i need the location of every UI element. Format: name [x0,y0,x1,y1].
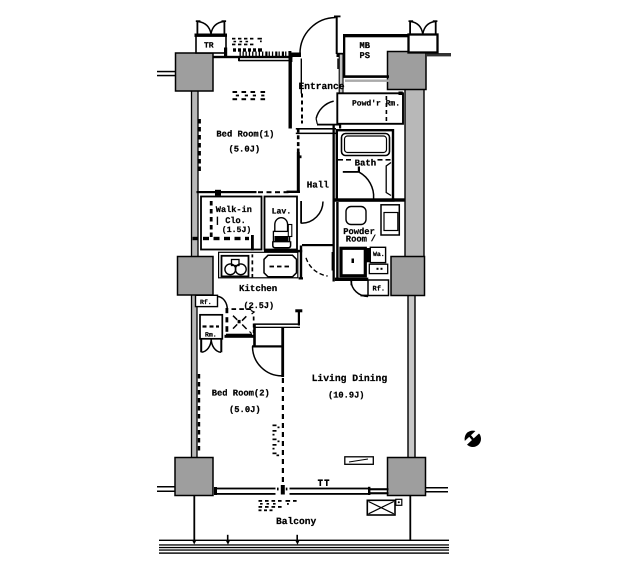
svg-text:Rm.: Rm. [205,332,217,339]
svg-text:Balcony: Balcony [276,516,317,527]
svg-text:(5.0J): (5.0J) [229,405,261,415]
svg-text:Bed Room(1): Bed Room(1) [216,129,274,139]
svg-text:| Clo.: | Clo. [215,216,246,226]
svg-text:TR: TR [204,42,214,51]
svg-text:(1.5J): (1.5J) [222,226,251,235]
svg-text:Room: Room [346,235,367,245]
svg-text:Powd'r Rm.: Powd'r Rm. [352,99,400,108]
svg-text:Wa.: Wa. [373,251,385,258]
svg-text:Hall: Hall [307,180,330,191]
svg-text:Rf.: Rf. [200,299,212,306]
svg-text:Lav.: Lav. [272,207,292,216]
svg-text:(10.9J): (10.9J) [328,391,365,401]
svg-text:Rf.: Rf. [373,285,386,294]
svg-text:Entrance: Entrance [299,81,345,92]
svg-text:Living Dining: Living Dining [312,373,388,384]
svg-text:PS: PS [360,51,371,61]
svg-text:/: / [371,234,376,244]
svg-text:Kitchen: Kitchen [239,283,277,294]
svg-text:MB: MB [360,41,371,51]
svg-text:(5.0J): (5.0J) [229,145,261,155]
svg-text:Bed Room(2): Bed Room(2) [212,388,270,398]
svg-text:Walk-in: Walk-in [216,205,252,215]
